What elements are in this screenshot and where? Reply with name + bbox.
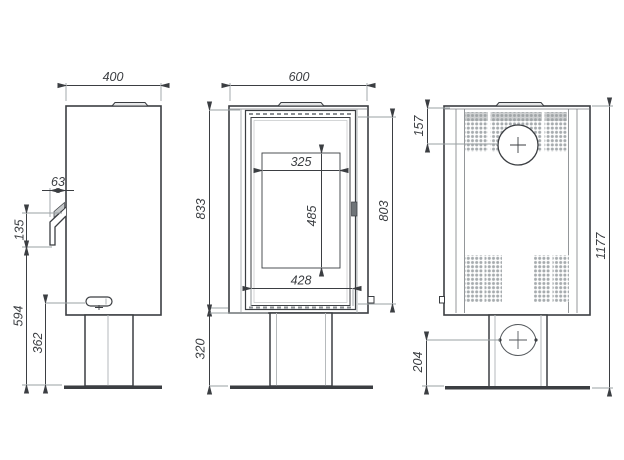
dim-front-top-width: 600 (230, 70, 367, 101)
dim-label-485: 485 (305, 206, 319, 227)
dim-label-400: 400 (103, 70, 124, 84)
rear-side-tab (440, 297, 445, 304)
dim-side-top-width: 400 (66, 70, 161, 101)
side-top-collar (112, 103, 148, 107)
dim-front-base-height: 320 (194, 313, 269, 386)
dim-label-157: 157 (412, 115, 426, 137)
dim-label-325: 325 (291, 155, 312, 169)
dim-rear-inlet-offset: 204 (411, 340, 500, 386)
front-base-plate (230, 386, 373, 390)
dim-label-362: 362 (31, 333, 45, 354)
front-door-latch (352, 202, 358, 216)
rear-bottom-perforation-left (465, 255, 502, 302)
rear-top-collar (496, 103, 544, 107)
side-pedestal (85, 315, 133, 386)
front-pedestal (270, 313, 332, 386)
rear-bottom-perforation-right (534, 255, 569, 302)
rear-flue-outlet (498, 125, 538, 165)
dim-label-320: 320 (194, 339, 208, 360)
dim-label-833: 833 (194, 199, 208, 220)
dim-rear-total-height: 1177 (592, 106, 613, 388)
rear-base-plate (445, 386, 590, 390)
front-top-collar (278, 103, 324, 107)
side-base-plate (64, 386, 162, 390)
stove-dimension-drawing: 400 63 135 594 362 (0, 0, 624, 460)
front-view: 600 833 803 325 485 428 (194, 70, 397, 389)
dim-side-handle-to-floor: 594 (12, 250, 63, 385)
technical-drawing-canvas: 400 63 135 594 362 (0, 0, 624, 460)
dim-label-63: 63 (51, 175, 65, 189)
front-side-tab (368, 297, 374, 304)
dim-label-135: 135 (13, 220, 27, 241)
rear-view: 157 204 1177 (411, 103, 613, 390)
dim-label-594: 594 (12, 306, 26, 327)
dim-label-803: 803 (377, 201, 391, 222)
dim-label-204: 204 (411, 352, 425, 374)
dim-label-428: 428 (291, 274, 312, 288)
dim-label-600: 600 (289, 70, 310, 84)
side-door-handle (50, 203, 66, 246)
side-body-outline (66, 106, 161, 315)
side-view: 400 63 135 594 362 (12, 70, 163, 389)
dim-label-1177: 1177 (594, 232, 608, 260)
